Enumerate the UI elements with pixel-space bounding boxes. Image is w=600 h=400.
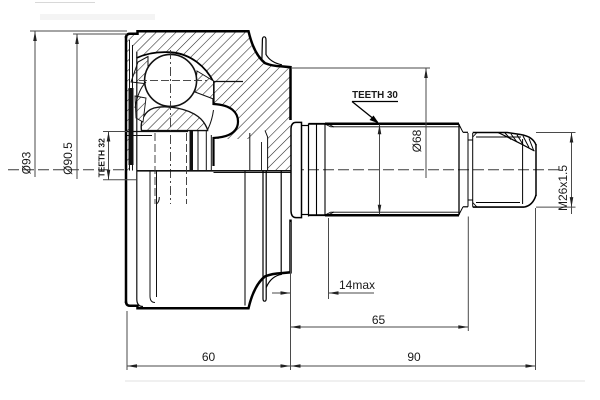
svg-text:Ø90.5: Ø90.5 (61, 142, 75, 175)
svg-text:90: 90 (407, 350, 421, 364)
svg-text:Ø93: Ø93 (20, 151, 34, 174)
svg-text:TEETH 30: TEETH 30 (352, 90, 398, 101)
svg-text:Ø68: Ø68 (410, 129, 424, 152)
svg-text:TEETH 32: TEETH 32 (97, 138, 107, 177)
svg-text:60: 60 (202, 350, 216, 364)
svg-text:65: 65 (372, 313, 386, 327)
svg-text:14max: 14max (339, 278, 375, 292)
svg-text:M26x1.5: M26x1.5 (556, 165, 570, 211)
